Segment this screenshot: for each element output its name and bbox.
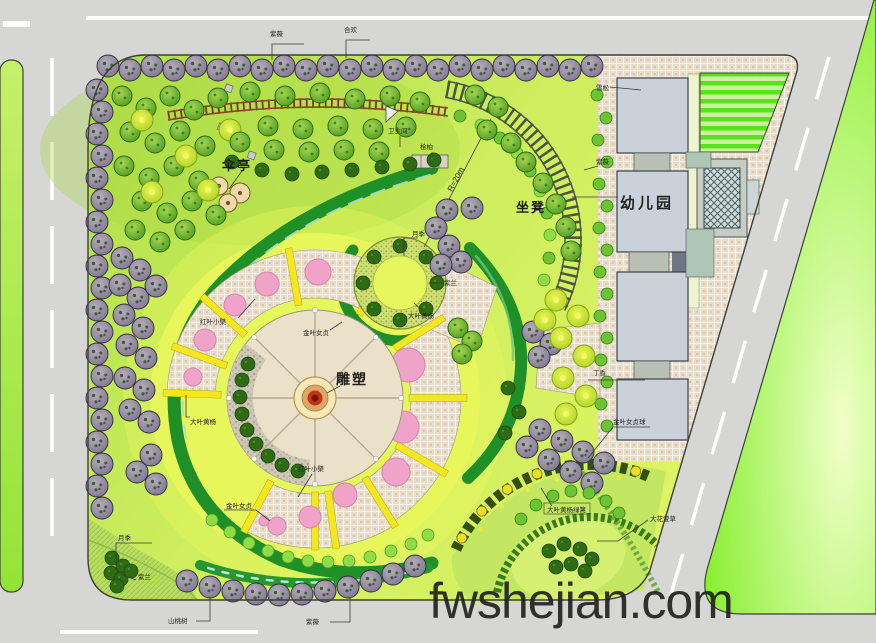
courtyard-lattice	[704, 168, 740, 228]
label-crape-myrtle-east: 紫薇	[596, 157, 610, 166]
label-kindergarten: 幼儿园	[620, 194, 674, 212]
label-rose-ne: 月季	[412, 229, 426, 238]
label-privet-south: 金叶女贞	[226, 501, 253, 510]
label-umbrella-pavilion: 伞亭	[221, 158, 252, 173]
building	[617, 78, 688, 153]
label-euonymus-west: 大叶黄杨	[190, 417, 217, 426]
annex	[686, 152, 711, 168]
label-privet-ball-se: 金叶女贞球	[613, 417, 646, 426]
label-orchid-ne: 紫兰	[444, 278, 458, 287]
plan-canvas: 紫薇 合欢 伞亭 卫生间 桧柏 R=20m 坐凳 雪松 紫薇 幼儿园 月季 紫兰…	[0, 0, 876, 643]
label-top-row-2: 合欢	[344, 25, 358, 34]
label-sculpture: 雕塑	[336, 371, 368, 387]
building-connector	[634, 153, 670, 171]
label-orchid-sw: 紫兰	[138, 572, 152, 581]
label-euonymus-ne: 大叶黄杨	[408, 311, 435, 320]
building	[617, 272, 688, 361]
label-juniper: 桧柏	[420, 142, 433, 151]
landscape-plan-image: 紫薇 合欢 伞亭 卫生间 桧柏 R=20m 坐凳 雪松 紫薇 幼儿园 月季 紫兰…	[0, 0, 876, 643]
annex	[686, 229, 714, 277]
annex	[747, 180, 759, 214]
label-rose-sw: 月季	[118, 533, 132, 542]
label-barberry-south: 红叶小檗	[298, 464, 325, 473]
label-restroom: 卫生间	[388, 126, 408, 135]
label-crape-myrtle-south: 紫薇	[306, 617, 320, 626]
label-peach-sw: 山桃树	[168, 616, 188, 625]
label-barberry-west: 红叶小檗	[200, 317, 227, 326]
label-privet-center: 金叶女贞	[303, 328, 330, 337]
border-trees-top	[97, 55, 603, 81]
label-cedar: 雪松	[596, 83, 610, 92]
building-connector	[629, 252, 669, 272]
west-verge-lawn	[0, 60, 23, 592]
label-lilac-east: 丁香	[593, 368, 607, 377]
watermark-text: fwshejian.com	[429, 573, 733, 629]
label-euonymus-hedge-se: 大叶黄杨绿篱	[547, 505, 587, 514]
label-bench: 坐凳	[516, 200, 546, 215]
label-top-row-1: 紫薇	[270, 29, 284, 38]
building	[617, 379, 688, 440]
sculpture-base	[294, 377, 336, 419]
building-connector	[634, 361, 670, 379]
label-daylily-se: 大花萱草	[650, 514, 677, 523]
